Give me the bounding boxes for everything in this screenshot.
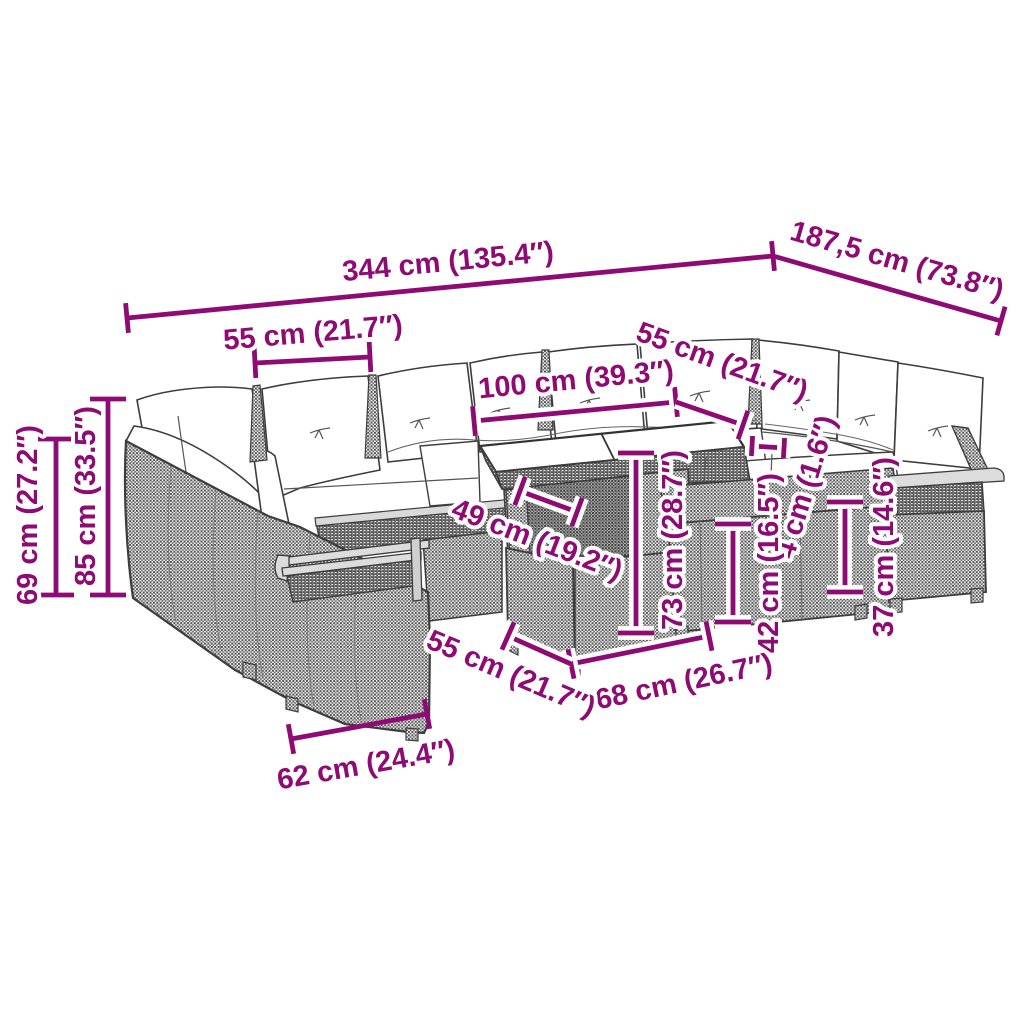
svg-text:37 cm (14.6″): 37 cm (14.6″) (868, 457, 900, 637)
svg-text:69 cm (27.2″): 69 cm (27.2″) (12, 425, 44, 605)
svg-text:85 cm (33.5″): 85 cm (33.5″) (70, 406, 102, 586)
svg-text:73 cm (28.7″): 73 cm (28.7″) (657, 450, 689, 630)
svg-text:42 cm (16.5″): 42 cm (16.5″) (753, 473, 785, 653)
